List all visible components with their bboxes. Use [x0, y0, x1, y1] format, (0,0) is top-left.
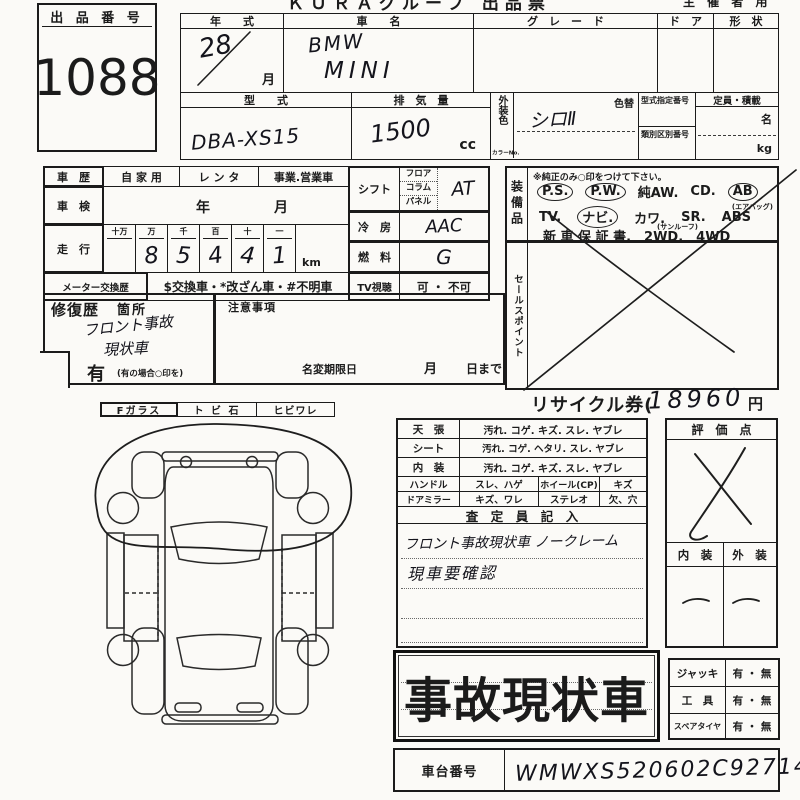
grade-label: グ レ ー ド [474, 14, 657, 29]
jack-label: ジャッキ [670, 660, 726, 686]
satei-header: 査 定 員 記 入 [398, 507, 646, 524]
repair-ari: 有 [87, 360, 105, 386]
digit-10k: 8 [134, 237, 168, 274]
jack-value: 有 ・ 無 [726, 660, 778, 686]
car-right-sill-panel [316, 533, 333, 628]
car-front-fender-right [276, 452, 308, 498]
displacement-unit: cc [459, 137, 476, 153]
satei-hw2: 現車要確認 [407, 559, 497, 585]
col-displacement: 排 気 量 1500 cc [351, 92, 491, 160]
col-capacity: 定員・積載 名 kg [695, 92, 779, 160]
notes-box: 注意事項 名変期限日 月 日まで [214, 293, 505, 385]
spare-label: スペアタイヤ [670, 714, 726, 738]
displacement-value: 1500 [369, 113, 433, 148]
displacement-label: 排 気 量 [352, 93, 490, 108]
car-wheel-rear-right [298, 635, 329, 666]
equipment-line1: P.S. P.W. 純AW. CD. AB [537, 182, 773, 201]
chassis-label: 車台番号 [395, 750, 505, 790]
history-rental: レ ン タ [179, 166, 259, 187]
cond-handle-label: ハンドル [398, 477, 460, 491]
satei-line4 [401, 642, 643, 643]
sales-point-side: セールスポイント [507, 243, 528, 388]
car-rear-quarter-right [276, 628, 308, 714]
fuel-label: 燃 料 [350, 243, 400, 271]
evaluation-label: 評 価 点 [667, 420, 776, 440]
recycle-label: リサイクル券( [531, 391, 653, 417]
equip-cd: CD. [690, 184, 715, 199]
car-name-line1: BMW [307, 29, 366, 58]
digit-header-100k: 十万 [107, 225, 132, 239]
chassis-value: WMWXS520602C92714 [515, 754, 800, 787]
cond-ceiling-label: 天 張 [398, 420, 460, 438]
accident-stamp-box: 事故現状車 [393, 650, 660, 742]
shaken-month: 月 [274, 197, 288, 217]
model-value: DBA-XS15 [190, 123, 301, 155]
equip-pw: P.W. [585, 183, 625, 201]
car-taillight-right [237, 703, 263, 712]
year-value: 28 [197, 29, 235, 64]
accident-stamp-text: 事故現状車 [399, 656, 654, 736]
col-exterior-color: 外装色 カラーNo. 色替 シロⅡ [490, 92, 639, 160]
history-row1-label: 車 歴 [43, 166, 104, 187]
sales-point-label: セールスポイント [510, 274, 524, 358]
ac-value: AAC [399, 211, 488, 243]
digit-100: 4 [198, 237, 233, 275]
type-divider [639, 126, 695, 127]
accident-stamp-inner: 事故現状車 [398, 655, 655, 737]
ruibetsu-label: 類別区別番号 [641, 129, 689, 140]
capacity-dashed [698, 135, 776, 136]
meihen-label: 名変期限日 [302, 361, 357, 377]
col-type-numbers: 型式指定番号 類別区別番号 [638, 92, 696, 160]
equipment-box: 装備品 ※純正のみ○印をつけて下さい。 P.S. P.W. 純AW. CD. A… [505, 166, 779, 242]
repair-label: 修復歴 [51, 299, 99, 320]
shift-row: シフト フロア コラム パネル AT [348, 166, 490, 212]
car-front-fender-left [132, 452, 164, 498]
col-shape: 形 状 [713, 13, 779, 93]
shaken-value-cell: 年 月 [103, 186, 349, 225]
car-damage-diagram [55, 415, 385, 760]
shift-value: AT [437, 166, 490, 211]
satei-line2 [401, 588, 643, 589]
fuel-value: G [400, 241, 489, 272]
col-door: ド ア [657, 13, 714, 93]
car-rear-window [177, 635, 261, 670]
condition-table: 天 張 汚れ. コゲ. キズ. スレ. ヤブレ シート 汚れ. コゲ. ヘタリ.… [396, 418, 648, 648]
shift-sub-floor: フロア [400, 168, 437, 181]
interior-label: 内 装 [667, 543, 723, 566]
col-year: 年 式 28 月 [180, 13, 284, 93]
cond-stereo-text: 欠、穴 [600, 492, 646, 506]
equip-tv: TV. [539, 210, 561, 225]
cond-stereo-label: ステレオ [539, 492, 600, 506]
auction-number-value: 1088 [39, 33, 155, 123]
evaluation-divider [723, 542, 724, 646]
meihen-day: 日まで [466, 360, 502, 377]
model-label: 型 式 [181, 93, 351, 108]
tools-value: 有 ・ 無 [726, 687, 778, 713]
mileage-label-cell: 走 行 [43, 224, 104, 273]
digit-10: 4 [230, 237, 264, 274]
exterior-color-label: 外装色 [496, 95, 507, 125]
car-rear-quarter-left [132, 628, 164, 714]
digit-header-1: 一 [267, 225, 292, 239]
damage-loop-mark [95, 424, 351, 551]
equipment-side: 装備品 [507, 168, 528, 240]
auction-number-label: 出 品 番 号 [42, 7, 152, 27]
car-windshield [171, 522, 267, 564]
repair-hw2: 現状車 [102, 337, 148, 360]
glass-f-box: Fガラス [100, 402, 178, 417]
equip-navi: ナビ. [577, 206, 618, 228]
satei-hw1: フロント事故現状車 ノークレーム [404, 530, 618, 554]
capacity-label: 定員・積載 [696, 93, 778, 107]
auction-number-box: 出 品 番 号 1088 [37, 3, 157, 152]
evaluation-x-mark [667, 440, 777, 542]
cond-seat-text: 汚れ. コゲ. ヘタリ. スレ. ヤブレ [460, 439, 646, 457]
digit-header-1k: 千 [171, 225, 196, 239]
shape-label: 形 状 [714, 14, 778, 29]
col-grade: グ レ ー ド [473, 13, 658, 93]
col-car-name: 車 名 BMW MINI [283, 13, 474, 93]
car-headlight-left [181, 457, 192, 468]
accessories-table: ジャッキ 有 ・ 無 工 具 有 ・ 無 スペアタイヤ 有 ・ 無 [668, 658, 780, 740]
exterior-color-side: 外装色 カラーNo. [491, 93, 514, 158]
year-label: 年 式 [181, 14, 283, 29]
car-wheel-front-left [108, 493, 139, 524]
shaken-year: 年 [196, 197, 210, 217]
car-front-bumper [162, 452, 278, 461]
ac-row: 冷 房 AAC [348, 211, 490, 242]
car-body-outline [165, 467, 273, 721]
fuel-row: 燃 料 G [348, 241, 490, 273]
car-taillight-left [175, 703, 201, 712]
door-label: ド ア [658, 14, 713, 29]
km-label: km [302, 256, 321, 269]
cond-wheel-text: キズ [600, 477, 646, 491]
satei-line1 [401, 558, 643, 559]
cond-handle-text: スレ、ハゲ [460, 477, 539, 491]
equip-ps: P.S. [537, 183, 573, 201]
cond-ceiling-text: 汚れ. コゲ. キズ. スレ. ヤブレ [460, 420, 646, 438]
cond-wheel-label: ホイール(CP) [539, 477, 600, 491]
cond-mirror-text: キズ、ワレ [460, 492, 539, 506]
recycle-value: 18960 [648, 383, 745, 414]
kg-label: kg [757, 142, 772, 155]
history-private: 自 家 用 [103, 166, 180, 187]
sheet-title-right: 主 催 者 用 [683, 0, 772, 10]
color-no-label: カラーNo. [492, 149, 519, 157]
equipment-label: 装備品 [509, 180, 526, 228]
meihen-month: 月 [424, 358, 437, 377]
shitei-label: 型式指定番号 [641, 95, 689, 106]
shift-sub-column: コラム [400, 181, 437, 195]
spare-value: 有 ・ 無 [726, 714, 778, 738]
mileage-zone: 十万 万8 千5 百4 十4 一1 km [103, 224, 349, 273]
car-right-door-panel [282, 535, 316, 641]
cond-interior-text: 汚れ. コゲ. キズ. スレ. ヤブレ [460, 458, 646, 476]
exterior-label: 外 装 [723, 543, 776, 566]
car-left-sill-panel [107, 533, 124, 628]
equip-ab: AB [728, 183, 758, 201]
shift-sub-panel: パネル [400, 195, 437, 209]
recycle-unit: 円 [748, 393, 763, 414]
sheet-title: ＫＵＲＡグループ 出品票 [287, 0, 551, 11]
repair-box-notch [40, 351, 70, 388]
cond-mirror-label: ドアミラー [398, 492, 460, 506]
car-rear-bumper [162, 715, 278, 724]
tools-label: 工 具 [670, 687, 726, 713]
digit-header-10: 十 [235, 225, 260, 239]
cond-interior-label: 内 装 [398, 458, 460, 476]
equip-aw: 純AW. [638, 182, 679, 201]
shift-sub: フロア コラム パネル [400, 168, 438, 210]
shaken-label-cell: 車 検 [43, 186, 104, 225]
ac-label: 冷 房 [350, 213, 400, 240]
persons-label: 名 [761, 111, 772, 127]
history-business: 事業.営業車 [258, 166, 349, 187]
car-name-line2: MINI [324, 58, 395, 84]
equip-abs: ABS [722, 210, 751, 225]
color-change-label: 色替 [614, 95, 634, 110]
repair-ari-note: (有の場合○印を) [117, 367, 183, 379]
notes-label: 注意事項 [228, 299, 276, 315]
shift-label: シフト [350, 168, 400, 210]
car-wheel-front-right [298, 493, 329, 524]
col-model: 型 式 DBA-XS15 [180, 92, 352, 160]
car-wheel-rear-left [108, 635, 139, 666]
car-left-door-panel [124, 535, 158, 641]
digit-1k: 5 [167, 238, 200, 274]
cond-seat-label: シート [398, 439, 460, 457]
evaluation-box: 評 価 点 内 装 外 装 [665, 418, 778, 648]
sales-point-box: セールスポイント [505, 241, 779, 390]
auction-sheet: ＫＵＲＡグループ 出品票 主 催 者 用 出 品 番 号 1088 年 式 28… [0, 0, 800, 800]
glass-crack-box: ヒビワレ [256, 402, 335, 417]
car-name-label: 車 名 [284, 14, 473, 29]
satei-line3 [401, 618, 643, 619]
evaluation-dashes [667, 567, 777, 647]
digit-1: 1 [263, 238, 296, 274]
exterior-color-value: シロⅡ [528, 104, 577, 133]
glass-stone-box: ト ビ 石 [177, 402, 257, 417]
car-headlight-right [247, 457, 258, 468]
month-label: 月 [262, 69, 275, 88]
equipment-line2: TV. ナビ. カワ. SR. ABS [539, 206, 773, 228]
chassis-row: 車台番号 WMWXS520602C92714 [393, 748, 780, 792]
